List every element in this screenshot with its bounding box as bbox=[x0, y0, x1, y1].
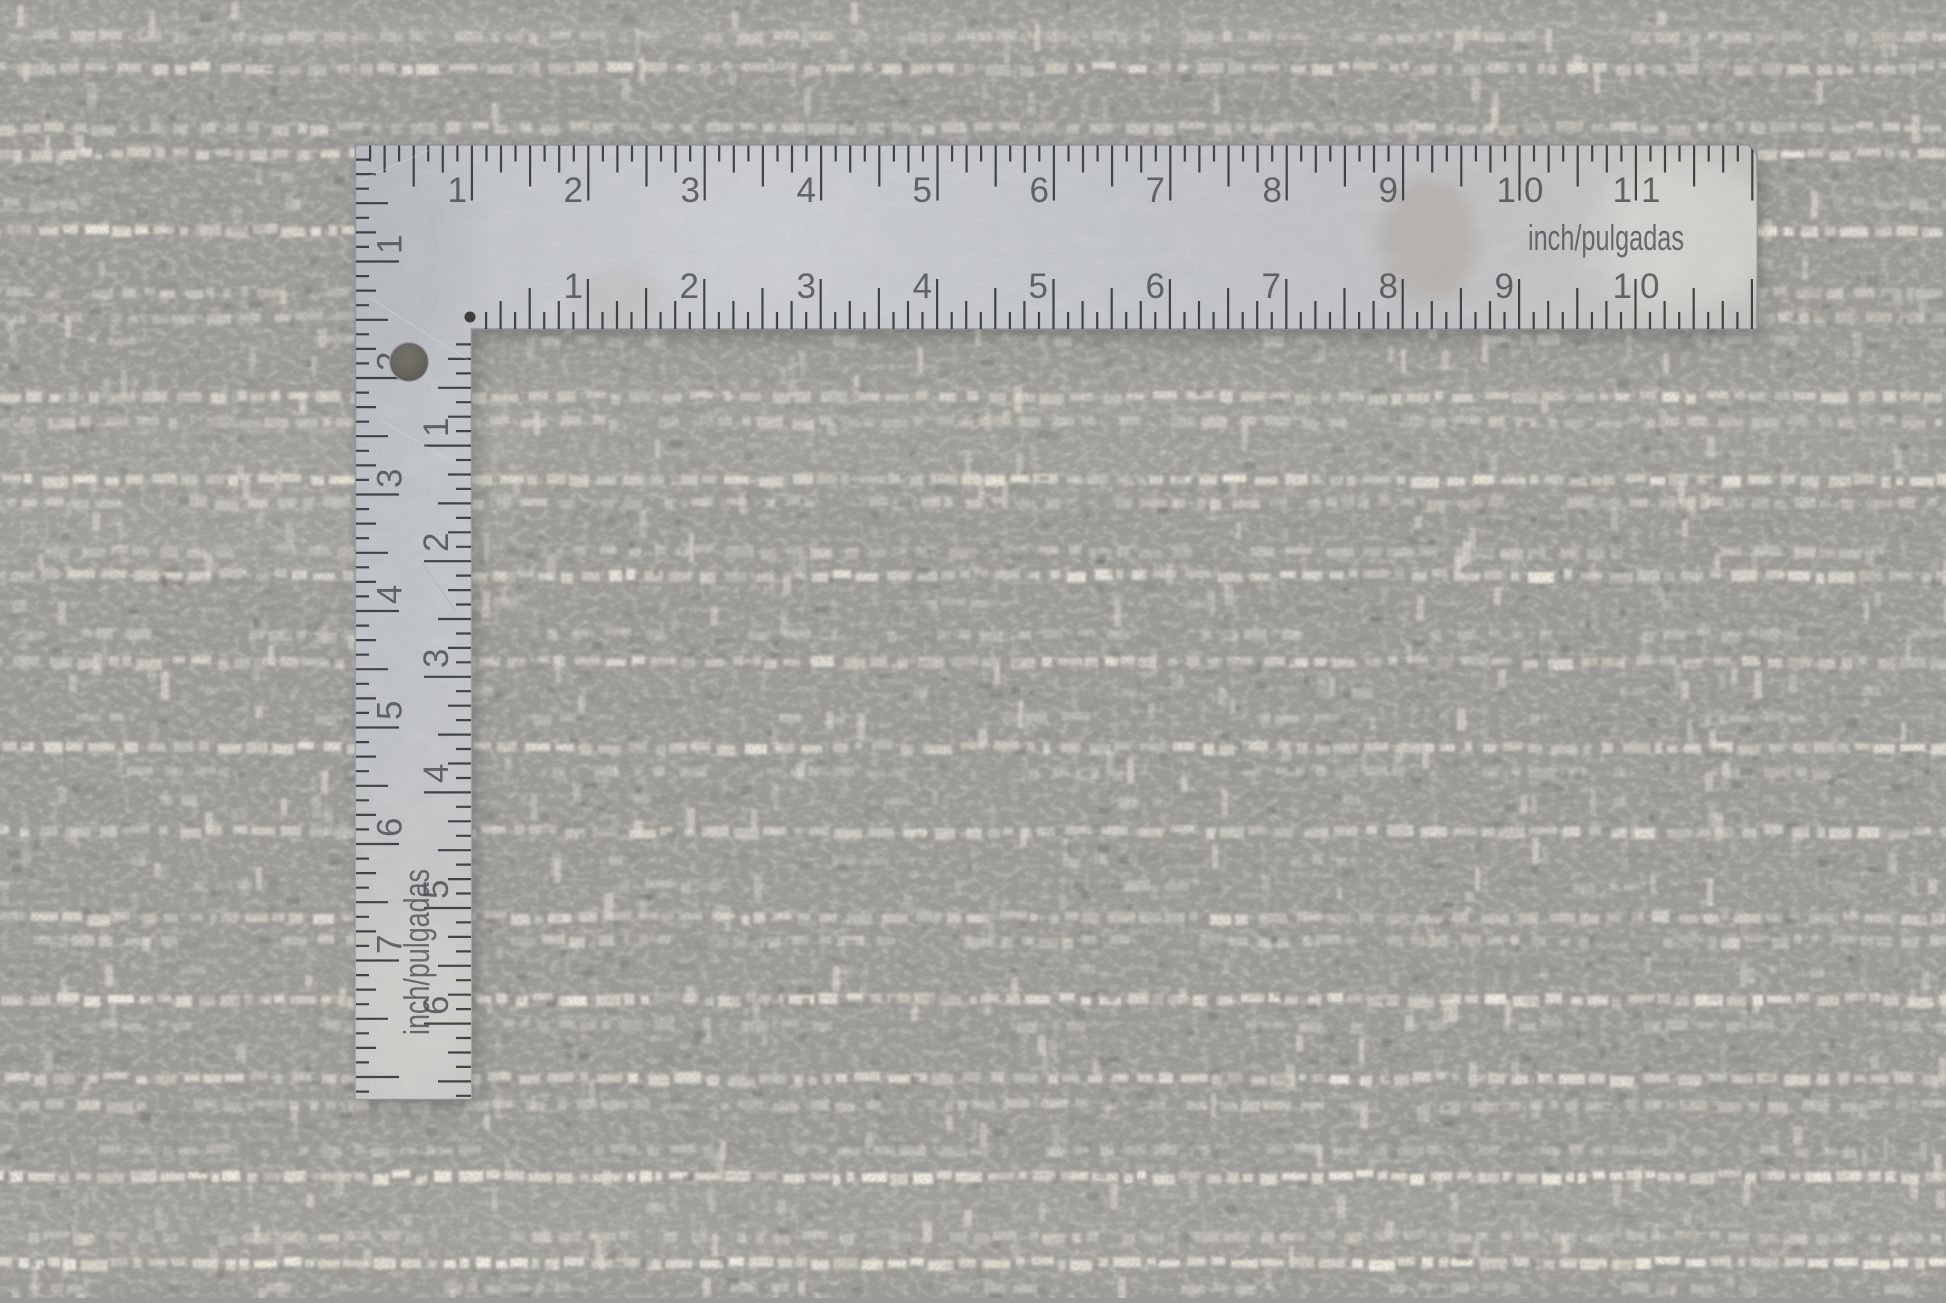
svg-text:3: 3 bbox=[371, 469, 410, 488]
svg-text:3: 3 bbox=[797, 267, 816, 306]
svg-text:inch/pulgadas: inch/pulgadas bbox=[1528, 217, 1684, 258]
svg-text:0: 0 bbox=[1524, 171, 1543, 210]
svg-text:2: 2 bbox=[564, 171, 583, 210]
svg-text:8: 8 bbox=[1379, 267, 1398, 306]
svg-text:1: 1 bbox=[1613, 171, 1632, 210]
svg-text:6: 6 bbox=[1146, 267, 1165, 306]
svg-text:4: 4 bbox=[371, 585, 410, 604]
svg-text:1: 1 bbox=[371, 235, 410, 254]
svg-text:9: 9 bbox=[1495, 267, 1514, 306]
svg-text:1: 1 bbox=[448, 171, 467, 210]
svg-text:1: 1 bbox=[1497, 171, 1516, 210]
svg-text:1: 1 bbox=[1641, 171, 1660, 210]
svg-text:7: 7 bbox=[1262, 267, 1281, 306]
svg-text:6: 6 bbox=[1030, 171, 1049, 210]
svg-text:1: 1 bbox=[1613, 267, 1632, 306]
svg-text:2: 2 bbox=[680, 267, 699, 306]
svg-text:2: 2 bbox=[417, 533, 456, 552]
svg-text:1: 1 bbox=[564, 267, 583, 306]
svg-text:0: 0 bbox=[1640, 267, 1659, 306]
svg-text:3: 3 bbox=[417, 649, 456, 668]
svg-text:5: 5 bbox=[371, 701, 410, 720]
svg-text:4: 4 bbox=[913, 267, 932, 306]
svg-text:1: 1 bbox=[417, 418, 456, 437]
svg-text:3: 3 bbox=[681, 171, 700, 210]
svg-text:9: 9 bbox=[1379, 171, 1398, 210]
svg-text:5: 5 bbox=[1029, 267, 1048, 306]
svg-text:7: 7 bbox=[1146, 171, 1165, 210]
svg-text:inch/pulgadas: inch/pulgadas bbox=[396, 869, 437, 1035]
svg-text:8: 8 bbox=[1263, 171, 1282, 210]
svg-text:4: 4 bbox=[797, 171, 816, 210]
svg-text:4: 4 bbox=[417, 764, 456, 783]
svg-text:5: 5 bbox=[913, 171, 932, 210]
svg-text:6: 6 bbox=[371, 818, 410, 837]
